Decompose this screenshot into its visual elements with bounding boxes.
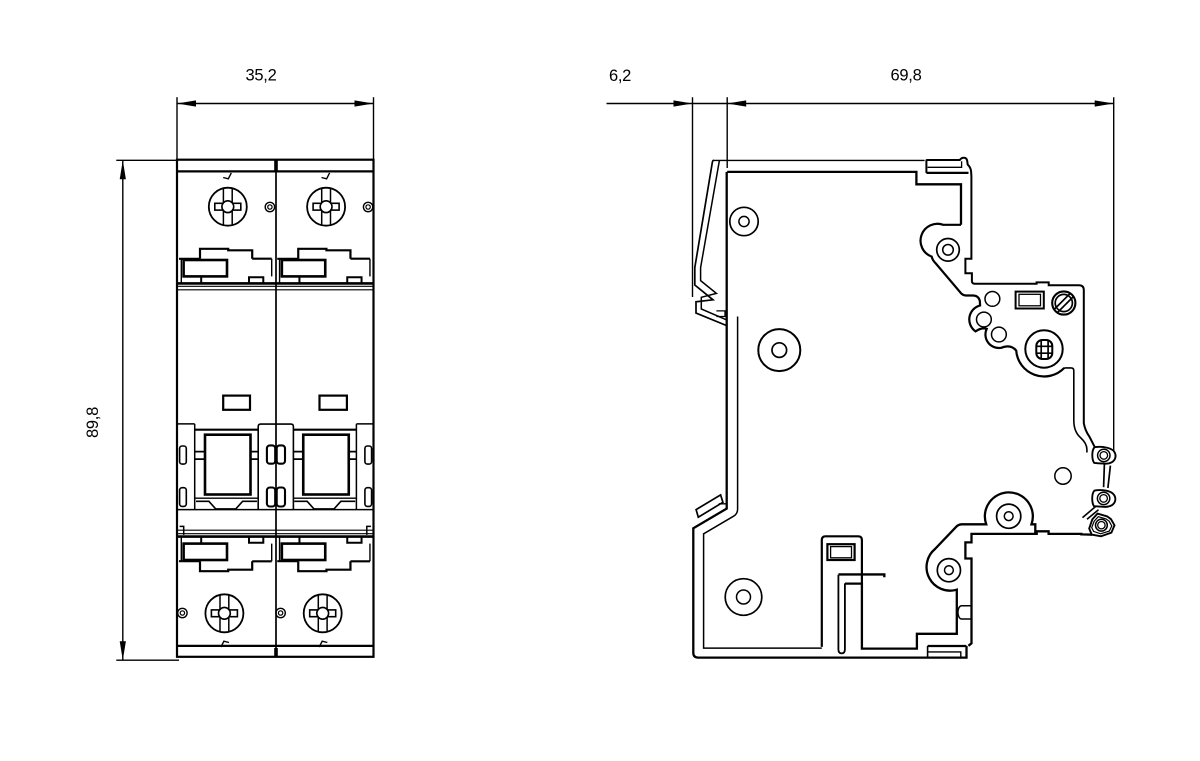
svg-text:69,8: 69,8 [891,67,922,85]
svg-text:35,2: 35,2 [246,67,277,85]
svg-text:89,8: 89,8 [84,407,102,438]
svg-text:6,2: 6,2 [609,67,631,85]
